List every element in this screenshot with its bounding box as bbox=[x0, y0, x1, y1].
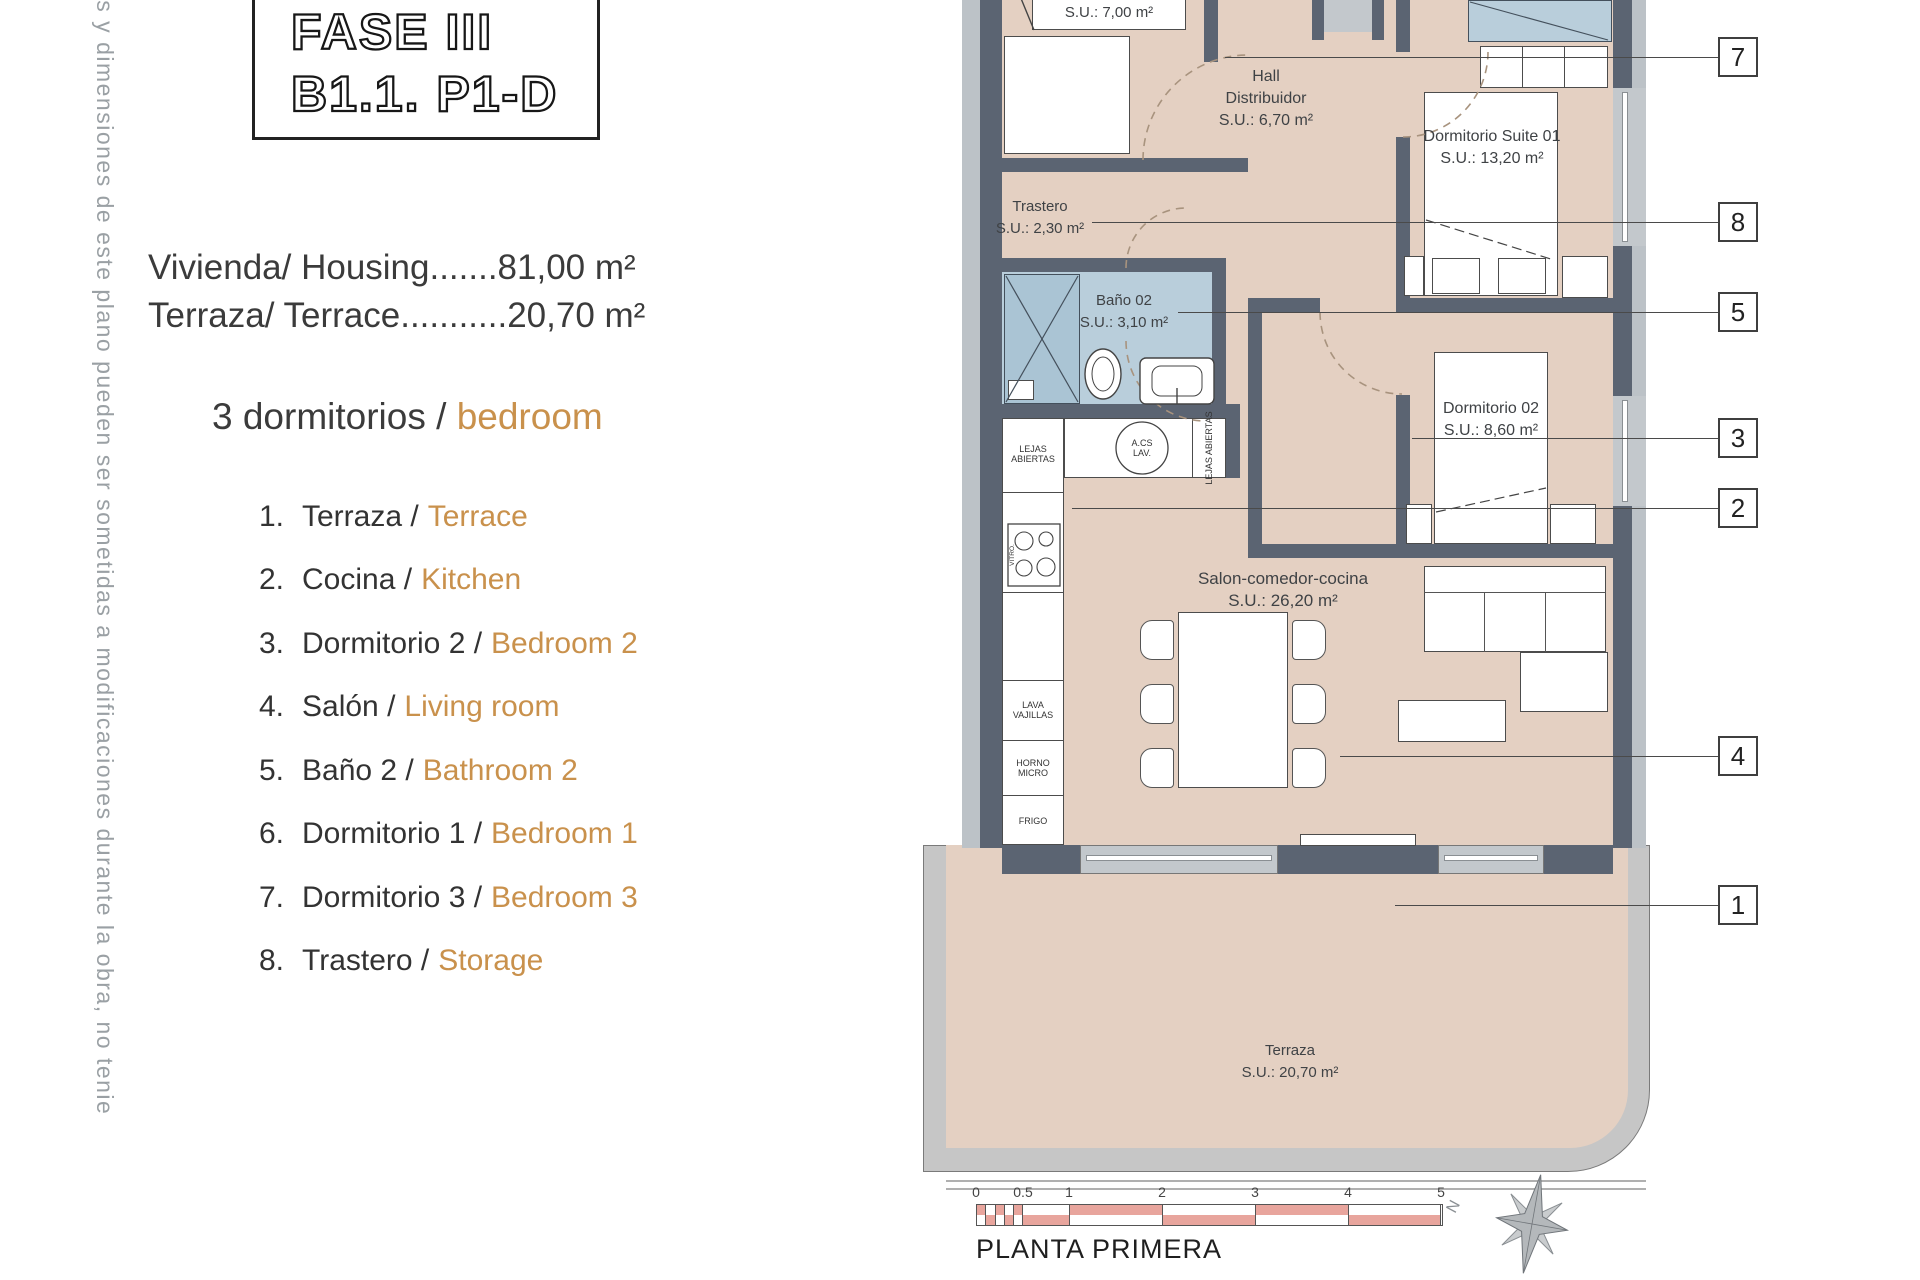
scale-seg bbox=[977, 1215, 986, 1225]
scale-seg bbox=[977, 1205, 986, 1215]
bedroom3-bed bbox=[1004, 36, 1130, 154]
scale-bar bbox=[976, 1204, 1443, 1226]
scale-seg bbox=[1023, 1205, 1070, 1215]
kitchen-label-fridge: FRIGO bbox=[1019, 816, 1048, 826]
kitchen-label-line: HORNO bbox=[1016, 758, 1050, 768]
kitchen-label-shelves-vertical: LEJAS ABIERTAS bbox=[1204, 411, 1214, 484]
phase-title-box: FASE III B1.1. P1-D bbox=[252, 0, 600, 140]
wall-suite-left-upper bbox=[1396, 0, 1410, 52]
leader-line-2 bbox=[1072, 508, 1718, 509]
scale-seg bbox=[1005, 1215, 1014, 1225]
kitchen-label-oven: HORNO MICRO bbox=[1016, 758, 1050, 778]
room-label-terrace: Terraza S.U.: 20,70 m² bbox=[1242, 1040, 1339, 1084]
kitchen-divider bbox=[1002, 795, 1064, 796]
callout-box-5: 5 bbox=[1718, 292, 1758, 332]
kitchen-divider bbox=[1002, 680, 1064, 681]
kitchen-label-line: LAVA bbox=[1013, 700, 1053, 710]
room-label-line: Salon-comedor-cocina bbox=[1198, 568, 1368, 590]
kitchen-label-dishwasher: LAVA VAJILLAS bbox=[1013, 700, 1053, 720]
room-label-bathroom2: Baño 02 S.U.: 3,10 m² bbox=[1080, 290, 1168, 334]
window-bedroom2 bbox=[1613, 396, 1646, 506]
legend-number: 7. bbox=[250, 881, 284, 915]
window-suite-glazing bbox=[1622, 92, 1628, 242]
wall-utility-right bbox=[1226, 404, 1240, 478]
room-label-line: Dormitorio 02 bbox=[1443, 398, 1539, 420]
legend-en: Bedroom 1 bbox=[491, 817, 638, 850]
leader-line-1 bbox=[1395, 905, 1718, 906]
sofa-cushion-line bbox=[1545, 592, 1546, 652]
legend-es: Cocina / bbox=[302, 563, 412, 596]
callout-box-1: 1 bbox=[1718, 885, 1758, 925]
legend-es: Trastero / bbox=[302, 944, 429, 977]
sofa-back-line bbox=[1424, 592, 1606, 593]
scale-seg bbox=[1023, 1215, 1070, 1225]
wall-hall-stub bbox=[1204, 0, 1218, 62]
shower-drain bbox=[1008, 380, 1034, 400]
room-label-hall: Hall Distribuidor S.U.: 6,70 m² bbox=[1219, 66, 1313, 132]
scale-tick: 0.5 bbox=[1013, 1184, 1032, 1200]
room-label-suite: Dormitorio Suite 01 S.U.: 13,20 m² bbox=[1424, 126, 1561, 170]
scale-seg bbox=[1014, 1215, 1023, 1225]
terrace-area-line: Terraza/ Terrace...........20,70 m² bbox=[148, 296, 645, 336]
scale-seg bbox=[1005, 1205, 1014, 1215]
bedrooms-count-line: 3 dormitorios / bedroom bbox=[212, 396, 603, 438]
scale-seg bbox=[986, 1205, 995, 1215]
wall-corridor-left bbox=[1248, 312, 1262, 558]
kitchen-label-line: A.CS bbox=[1131, 438, 1152, 448]
leader-line-7 bbox=[1225, 57, 1718, 58]
dining-chair bbox=[1292, 684, 1326, 724]
scale-tick: 4 bbox=[1344, 1184, 1352, 1200]
suite-closet bbox=[1480, 46, 1608, 88]
wall-terrace-segment bbox=[1002, 845, 1080, 874]
dining-chair bbox=[1140, 748, 1174, 788]
legend-en: Terrace bbox=[428, 500, 528, 533]
wall-window-jamb bbox=[1372, 0, 1384, 40]
legend-number: 1. bbox=[250, 500, 284, 534]
terrace-edge-line bbox=[946, 1180, 1646, 1182]
scale-tick: 3 bbox=[1251, 1184, 1259, 1200]
kitchen-label-line: LEJAS bbox=[1011, 444, 1055, 454]
room-label-line: S.U.: 26,20 m² bbox=[1198, 590, 1368, 612]
housing-area-line: Vivienda/ Housing.......81,00 m² bbox=[148, 248, 636, 288]
side-disclaimer-text: es y dimensiones de este plano pueden se… bbox=[91, 0, 118, 1280]
room-label-line: Hall bbox=[1219, 66, 1313, 88]
plan-caption: PLANTA PRIMERA bbox=[976, 1234, 1222, 1265]
kitchen-label-line: ABIERTAS bbox=[1011, 454, 1055, 464]
wall-hall-bedroom2 bbox=[1248, 298, 1320, 312]
suite-nightstand bbox=[1562, 256, 1608, 298]
compass-cardinal-star bbox=[1488, 1169, 1576, 1280]
room-label-line: S.U.: 20,70 m² bbox=[1242, 1062, 1339, 1084]
suite-blue-bed bbox=[1468, 0, 1612, 42]
room-label-line: Distribuidor bbox=[1219, 88, 1313, 110]
window-top bbox=[1324, 0, 1372, 32]
utility-divider bbox=[1192, 418, 1193, 478]
room-label-line: Trastero bbox=[996, 196, 1084, 218]
legend-es: Dormitorio 1 / bbox=[302, 817, 482, 850]
legend-number: 3. bbox=[250, 627, 284, 661]
scale-seg bbox=[1256, 1205, 1349, 1215]
scale-tick: 5 bbox=[1437, 1184, 1445, 1200]
callout-box-4: 4 bbox=[1718, 736, 1758, 776]
wall-window-jamb bbox=[1312, 0, 1324, 40]
legend-en: Storage bbox=[438, 944, 543, 977]
room-label-living: Salon-comedor-cocina S.U.: 26,20 m² bbox=[1198, 568, 1368, 612]
legend-en: Bedroom 2 bbox=[491, 627, 638, 660]
legend-es: Salón / bbox=[302, 690, 395, 723]
leader-line-5 bbox=[1178, 312, 1718, 313]
wall-left-outer bbox=[962, 0, 980, 848]
wall-bath-right bbox=[1212, 272, 1226, 404]
kitchen-label-line: MICRO bbox=[1016, 768, 1050, 778]
sofa-cushion-line bbox=[1484, 592, 1485, 652]
legend-en: Kitchen bbox=[421, 563, 521, 596]
kitchen-label-line: VAJILLAS bbox=[1013, 710, 1053, 720]
room-label-line: S.U.: 2,30 m² bbox=[996, 218, 1084, 240]
scale-seg bbox=[996, 1205, 1005, 1215]
scale-seg bbox=[1349, 1215, 1441, 1225]
scale-bar-row bbox=[977, 1215, 1442, 1225]
vent-box bbox=[1300, 834, 1416, 846]
kitchen-divider bbox=[1002, 492, 1064, 493]
legend-number: 5. bbox=[250, 754, 284, 788]
kitchen-counter bbox=[1002, 418, 1064, 845]
bedroom2-bed bbox=[1434, 352, 1548, 544]
wall-terrace-segment bbox=[1544, 845, 1613, 874]
bedroom2-nightstand bbox=[1406, 504, 1432, 544]
wall-left bbox=[980, 0, 1002, 848]
closet-divider bbox=[1564, 46, 1565, 88]
callout-box-7: 7 bbox=[1718, 37, 1758, 77]
dining-chair bbox=[1292, 620, 1326, 660]
kitchen-label-shelves: LEJAS ABIERTAS bbox=[1011, 444, 1055, 464]
dining-chair bbox=[1140, 620, 1174, 660]
dining-table bbox=[1178, 612, 1288, 788]
legend-es: Terraza / bbox=[302, 500, 419, 533]
wall-suite-bedroom2 bbox=[1396, 298, 1618, 312]
legend-es: Baño 2 / bbox=[302, 754, 414, 787]
suite-nightstand bbox=[1404, 256, 1424, 296]
scale-seg bbox=[996, 1215, 1005, 1225]
legend-number: 2. bbox=[250, 563, 284, 597]
room-label-line: Dormitorio Suite 01 bbox=[1424, 126, 1561, 148]
callout-box-3: 3 bbox=[1718, 418, 1758, 458]
room-label-line: S.U.: 13,20 m² bbox=[1424, 148, 1561, 170]
callout-box-8: 8 bbox=[1718, 202, 1758, 242]
room-label-line: Baño 02 bbox=[1080, 290, 1168, 312]
dining-chair bbox=[1292, 748, 1326, 788]
kitchen-label-line: LAV. bbox=[1131, 448, 1152, 458]
sliding-door-left-glazing bbox=[1086, 855, 1272, 861]
kitchen-divider bbox=[1002, 740, 1064, 741]
coffee-table bbox=[1398, 700, 1506, 742]
scale-seg bbox=[1163, 1205, 1256, 1215]
scale-seg bbox=[1163, 1215, 1256, 1225]
floorplan-page: es y dimensiones de este plano pueden se… bbox=[0, 0, 1920, 1280]
sofa-chaise bbox=[1520, 652, 1608, 712]
bedroom2-nightstand bbox=[1550, 504, 1596, 544]
legend-en: Bathroom 2 bbox=[423, 754, 578, 787]
callout-box-2: 2 bbox=[1718, 488, 1758, 528]
compass-rose bbox=[1488, 1169, 1576, 1280]
room-label-line: S.U.: 3,10 m² bbox=[1080, 312, 1168, 334]
bedrooms-count-es: 3 dormitorios / bbox=[212, 396, 446, 437]
scale-tick: 1 bbox=[1065, 1184, 1073, 1200]
room-label-line: Terraza bbox=[1242, 1040, 1339, 1062]
room-label-storage: Trastero S.U.: 2,30 m² bbox=[996, 196, 1084, 240]
window-bedroom2-glazing bbox=[1622, 400, 1628, 502]
room-label-line: S.U.: 6,70 m² bbox=[1219, 110, 1313, 132]
bedrooms-count-en: bedroom bbox=[457, 396, 603, 437]
legend-en: Bedroom 3 bbox=[491, 881, 638, 914]
compass-north-label: N bbox=[1444, 1198, 1464, 1216]
room-label-line: S.U.: 8,60 m² bbox=[1443, 420, 1539, 442]
legend-number: 8. bbox=[250, 944, 284, 978]
scale-seg bbox=[986, 1215, 995, 1225]
wall-storage-top bbox=[1002, 158, 1248, 172]
compass-axis bbox=[1497, 1218, 1568, 1231]
wall-bedroom2-bottom bbox=[1262, 544, 1618, 558]
compass-diagonal-star bbox=[1502, 1194, 1562, 1254]
legend-number: 6. bbox=[250, 817, 284, 851]
leader-line-4 bbox=[1340, 756, 1718, 757]
legend-es: Dormitorio 3 / bbox=[302, 881, 482, 914]
phase-title-line1: FASE III bbox=[291, 1, 597, 63]
legend-en: Living room bbox=[404, 690, 559, 723]
legend-es: Dormitorio 2 / bbox=[302, 627, 482, 660]
room-label-bedroom3-area: S.U.: 7,00 m² bbox=[1065, 2, 1153, 24]
terrace-edge-line bbox=[946, 1188, 1646, 1190]
suite-pillow bbox=[1498, 258, 1546, 294]
wall-storage-bath bbox=[1002, 258, 1226, 272]
sofa bbox=[1424, 566, 1606, 652]
scale-tick: 2 bbox=[1158, 1184, 1166, 1200]
closet-divider bbox=[1522, 46, 1523, 88]
room-label-bedroom2: Dormitorio 02 S.U.: 8,60 m² bbox=[1443, 398, 1539, 442]
scale-seg bbox=[1014, 1205, 1023, 1215]
scale-tick: 0 bbox=[972, 1184, 980, 1200]
scale-seg bbox=[1349, 1205, 1441, 1215]
sliding-door-right-glazing bbox=[1444, 855, 1538, 861]
phase-title-line2: B1.1. P1-D bbox=[291, 63, 597, 125]
scale-seg bbox=[1256, 1215, 1349, 1225]
dining-chair bbox=[1140, 684, 1174, 724]
scale-seg bbox=[1070, 1205, 1163, 1215]
suite-pillow bbox=[1432, 258, 1480, 294]
leader-line-8 bbox=[1092, 222, 1718, 223]
kitchen-label-hob: VITRO. bbox=[1008, 544, 1018, 566]
scale-bar-row bbox=[977, 1205, 1442, 1215]
kitchen-divider bbox=[1002, 592, 1064, 593]
legend-number: 4. bbox=[250, 690, 284, 724]
wall-terrace-segment bbox=[1278, 845, 1438, 874]
scale-seg bbox=[1070, 1215, 1163, 1225]
kitchen-label-heater: A.CS LAV. bbox=[1131, 438, 1152, 458]
terrace-floor bbox=[946, 845, 1628, 1148]
